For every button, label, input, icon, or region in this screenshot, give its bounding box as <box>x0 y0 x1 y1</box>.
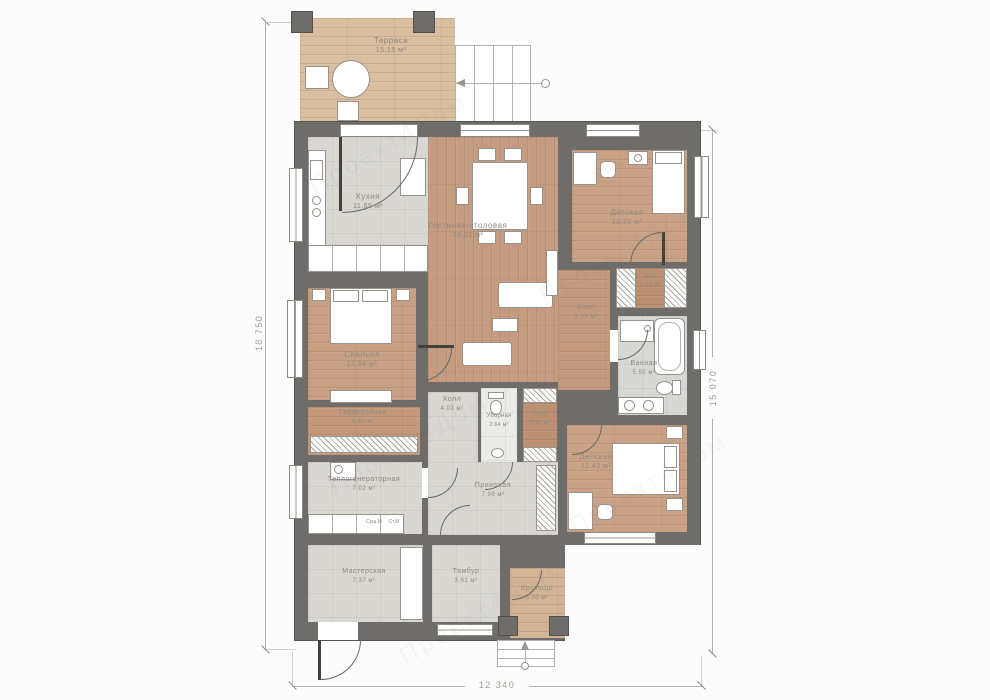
dining-chair <box>504 148 522 161</box>
coffee-table <box>492 318 518 332</box>
label-child2: Детская12.42 м² <box>566 452 626 472</box>
bed-pillow <box>655 152 682 164</box>
lamp <box>634 154 642 162</box>
dimension-bottom-label: 12 340 <box>465 679 529 691</box>
door-opening <box>318 622 358 640</box>
sink <box>624 400 635 411</box>
label-ward244: Гард.2.44 м² <box>630 273 670 288</box>
dimension-left-label: 18 750 <box>253 302 265 364</box>
label-porch: Крыльцо5.00 м² <box>512 585 562 602</box>
terrace-post <box>291 11 313 33</box>
door-arc <box>321 640 361 680</box>
label-workshop: Мастерская7.37 м² <box>324 568 404 585</box>
sink <box>491 448 504 458</box>
window <box>289 168 303 242</box>
label-bath: Ванная5.92 м² <box>616 360 672 377</box>
label-hall403: Холл4.03 м² <box>432 396 472 413</box>
label-living: Гостиная-столовая29.02 м² <box>413 221 523 241</box>
dim-ext <box>266 649 296 650</box>
building-cutout <box>565 545 701 641</box>
desk <box>573 152 597 185</box>
bed-pillow <box>362 290 388 302</box>
dim-ext <box>701 656 702 686</box>
label-entry: Прихожая7.99 м² <box>458 482 528 499</box>
nightstand <box>312 289 326 301</box>
nightstand <box>666 498 683 511</box>
ward255-hangers <box>523 447 557 462</box>
dimension-right-label: 15 070 <box>707 357 719 419</box>
sink <box>643 400 654 411</box>
dimension-line-left <box>265 22 266 650</box>
toilet-tank <box>672 380 681 395</box>
ward255-hangers <box>523 388 557 403</box>
porch-post <box>549 616 569 636</box>
nightstand <box>666 426 683 439</box>
kitchen-counter-bottom <box>308 245 428 272</box>
terrace-chair <box>337 101 359 121</box>
stairs-arrow <box>456 79 465 87</box>
stove-burner <box>312 208 321 217</box>
dresser <box>330 390 392 403</box>
chair <box>600 161 616 178</box>
terrace-chair <box>305 66 329 89</box>
dining-chair <box>478 148 496 161</box>
dining-chair <box>456 187 469 205</box>
label-wardrobe: Гардеробная4.80 м² <box>323 409 403 426</box>
bed-pillow <box>333 290 359 302</box>
entry-wardrobe <box>536 465 556 531</box>
label-ward255: Гард.2.55 м² <box>520 411 560 426</box>
dryer-label: Суш.М <box>363 519 385 528</box>
dim-ext <box>700 130 718 131</box>
dim-ext <box>292 652 293 686</box>
door-opening <box>610 330 618 362</box>
nightstand <box>396 289 410 301</box>
round-table <box>332 60 370 98</box>
dining-table <box>472 162 528 230</box>
window <box>693 330 706 370</box>
label-kitchen: Кухня11.65 м² <box>328 192 408 212</box>
washer-label: Ст.М <box>384 519 404 528</box>
steps-direction-origin <box>521 662 529 670</box>
floor-plan: 18 750 15 070 12 340 <box>0 0 990 700</box>
stairs-direction-line <box>455 83 543 84</box>
label-bedroom: Спальня12.84 м² <box>327 350 397 370</box>
window <box>289 465 303 519</box>
label-hall319: Холл3.19 м² <box>566 304 606 321</box>
window <box>460 124 530 137</box>
terrace-post <box>413 11 435 33</box>
stairs-direction-origin <box>541 79 550 88</box>
steps-arrow <box>521 641 529 650</box>
porch-post <box>498 616 518 636</box>
dining-chair <box>530 187 543 205</box>
window <box>584 532 656 544</box>
label-wc: Уборная2.64 м² <box>479 413 519 428</box>
toilet-tank <box>488 392 504 399</box>
label-boiler: Теплогенераторная7.02 м² <box>309 476 419 493</box>
toilet <box>656 381 673 395</box>
label-tambour: Тамбур3.61 м² <box>436 568 496 585</box>
label-child1: Детская12.35 м² <box>592 208 662 228</box>
sofa <box>462 342 512 366</box>
label-terrace: Терраса15.15 м² <box>351 36 431 56</box>
window <box>287 300 303 378</box>
window <box>586 124 640 137</box>
